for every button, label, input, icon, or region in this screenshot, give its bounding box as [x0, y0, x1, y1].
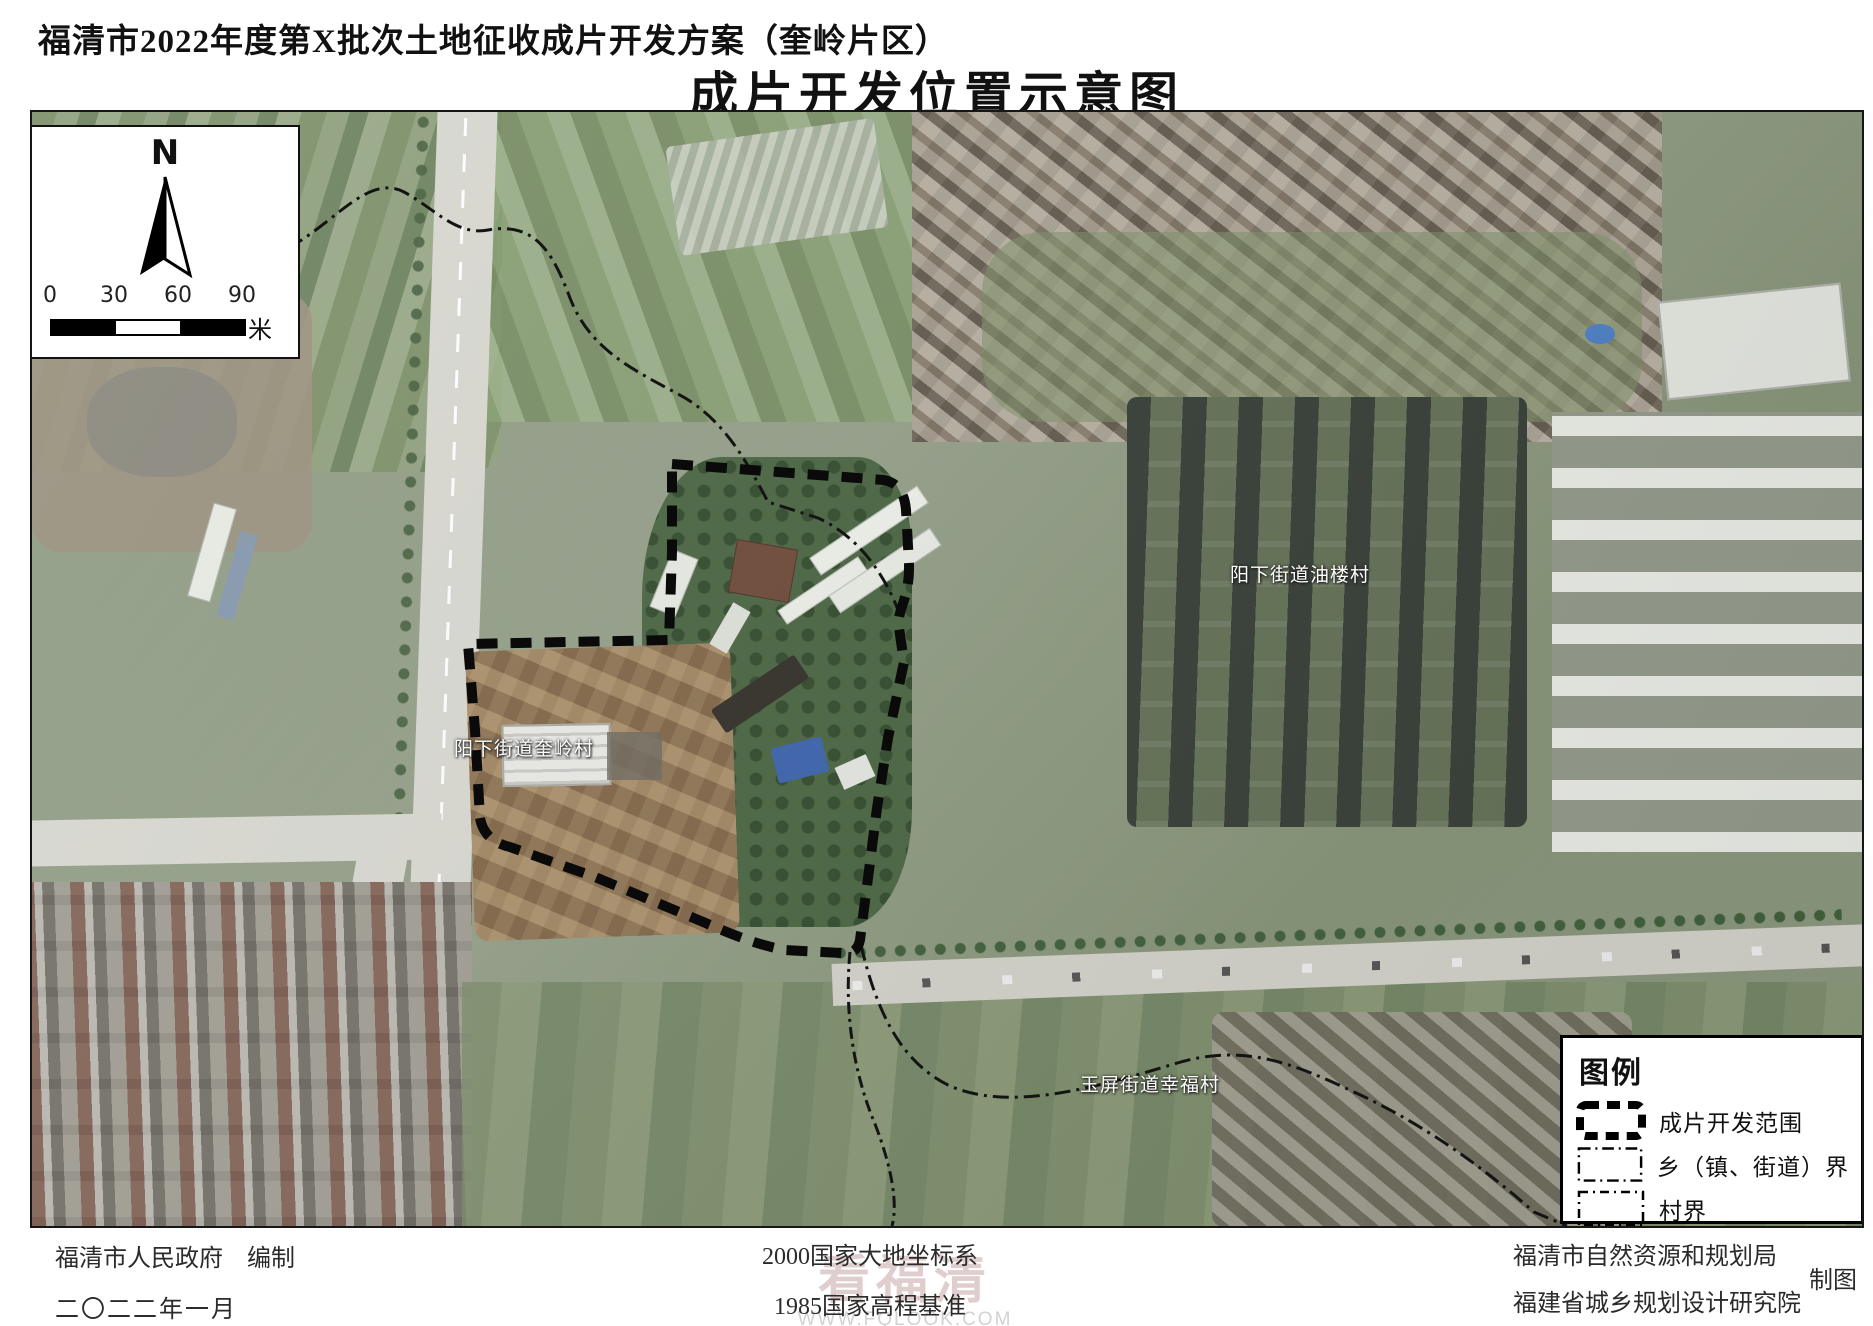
legend-item-village-boundary: 村界 — [1575, 1188, 1849, 1228]
scale-bar-segment-black-1 — [52, 321, 116, 334]
footer-agency-2: 福建省城乡规划设计研究院 — [1513, 1283, 1801, 1318]
north-scale-panel: N 0 30 60 90 米 — [30, 125, 300, 359]
scale-tick-90: 90 — [225, 283, 259, 308]
scale-tick-30: 30 — [97, 283, 131, 308]
map-document-page: 福清市2022年度第X批次土地征收成片开发方案（奎岭片区） 成片开发位置示意图 — [0, 0, 1873, 1326]
legend-item-development-area: 成片开发范围 — [1575, 1100, 1849, 1142]
map-label-kuiling-village: 阳下街道奎岭村 — [454, 734, 594, 761]
footer-coordinate-system: 2000国家大地坐标系 — [762, 1236, 978, 1271]
footer-right-block: 福清市自然资源和规划局 福建省城乡规划设计研究院 制图 — [1513, 1236, 1857, 1318]
map-canvas: 阳下街道油楼村 阳下街道奎岭村 玉屏街道幸福村 N 0 30 60 90 米 — [30, 110, 1864, 1228]
village-boundary-line — [848, 952, 894, 1226]
scale-bar-segment-black-2 — [180, 321, 244, 334]
footer-elevation-datum: 1985国家高程基准 — [762, 1286, 978, 1321]
scale-tick-60: 60 — [161, 283, 195, 308]
legend-label-development-area: 成片开发范围 — [1659, 1104, 1803, 1138]
scale-tick-labels: 0 30 60 90 — [32, 283, 298, 311]
scale-tick-0: 0 — [33, 283, 67, 308]
township-boundary-line-upper — [260, 188, 901, 618]
footer-cartography-credit: 制图 — [1809, 1260, 1857, 1295]
legend-label-village-boundary: 村界 — [1659, 1192, 1707, 1226]
map-label-xingfu-village: 玉屏街道幸福村 — [1080, 1070, 1220, 1097]
footer-left-block: 福清市人民政府 编制 二〇二二年一月 — [55, 1238, 295, 1324]
scale-unit-label: 米 — [248, 310, 272, 345]
footer-date: 二〇二二年一月 — [55, 1289, 295, 1324]
legend-swatch-development-area-icon — [1575, 1100, 1647, 1142]
scale-bar-segment-white — [116, 321, 180, 334]
scale-bar — [50, 319, 246, 336]
footer-agency-1: 福清市自然资源和规划局 — [1513, 1236, 1801, 1271]
development-boundary-outline — [468, 464, 909, 953]
legend-item-township-boundary: 乡（镇、街道）界 — [1575, 1144, 1849, 1186]
footer-center-block: 2000国家大地坐标系 1985国家高程基准 — [762, 1236, 978, 1321]
map-label-youlou-village: 阳下街道油楼村 — [1230, 560, 1370, 587]
footer-compiler: 福清市人民政府 编制 — [55, 1238, 295, 1273]
north-label: N — [32, 133, 298, 173]
document-subtitle: 福清市2022年度第X批次土地征收成片开发方案（奎岭片区） — [38, 14, 949, 62]
legend-title: 图例 — [1579, 1048, 1849, 1092]
legend-swatch-township-boundary-icon — [1575, 1144, 1645, 1186]
north-arrow-icon — [130, 173, 200, 283]
legend-panel: 图例 成片开发范围 乡（镇、街道）界 村界 — [1560, 1035, 1864, 1224]
legend-swatch-village-boundary-icon — [1575, 1188, 1647, 1228]
footer-agencies: 福清市自然资源和规划局 福建省城乡规划设计研究院 — [1513, 1236, 1801, 1318]
legend-label-township-boundary: 乡（镇、街道）界 — [1657, 1148, 1849, 1182]
